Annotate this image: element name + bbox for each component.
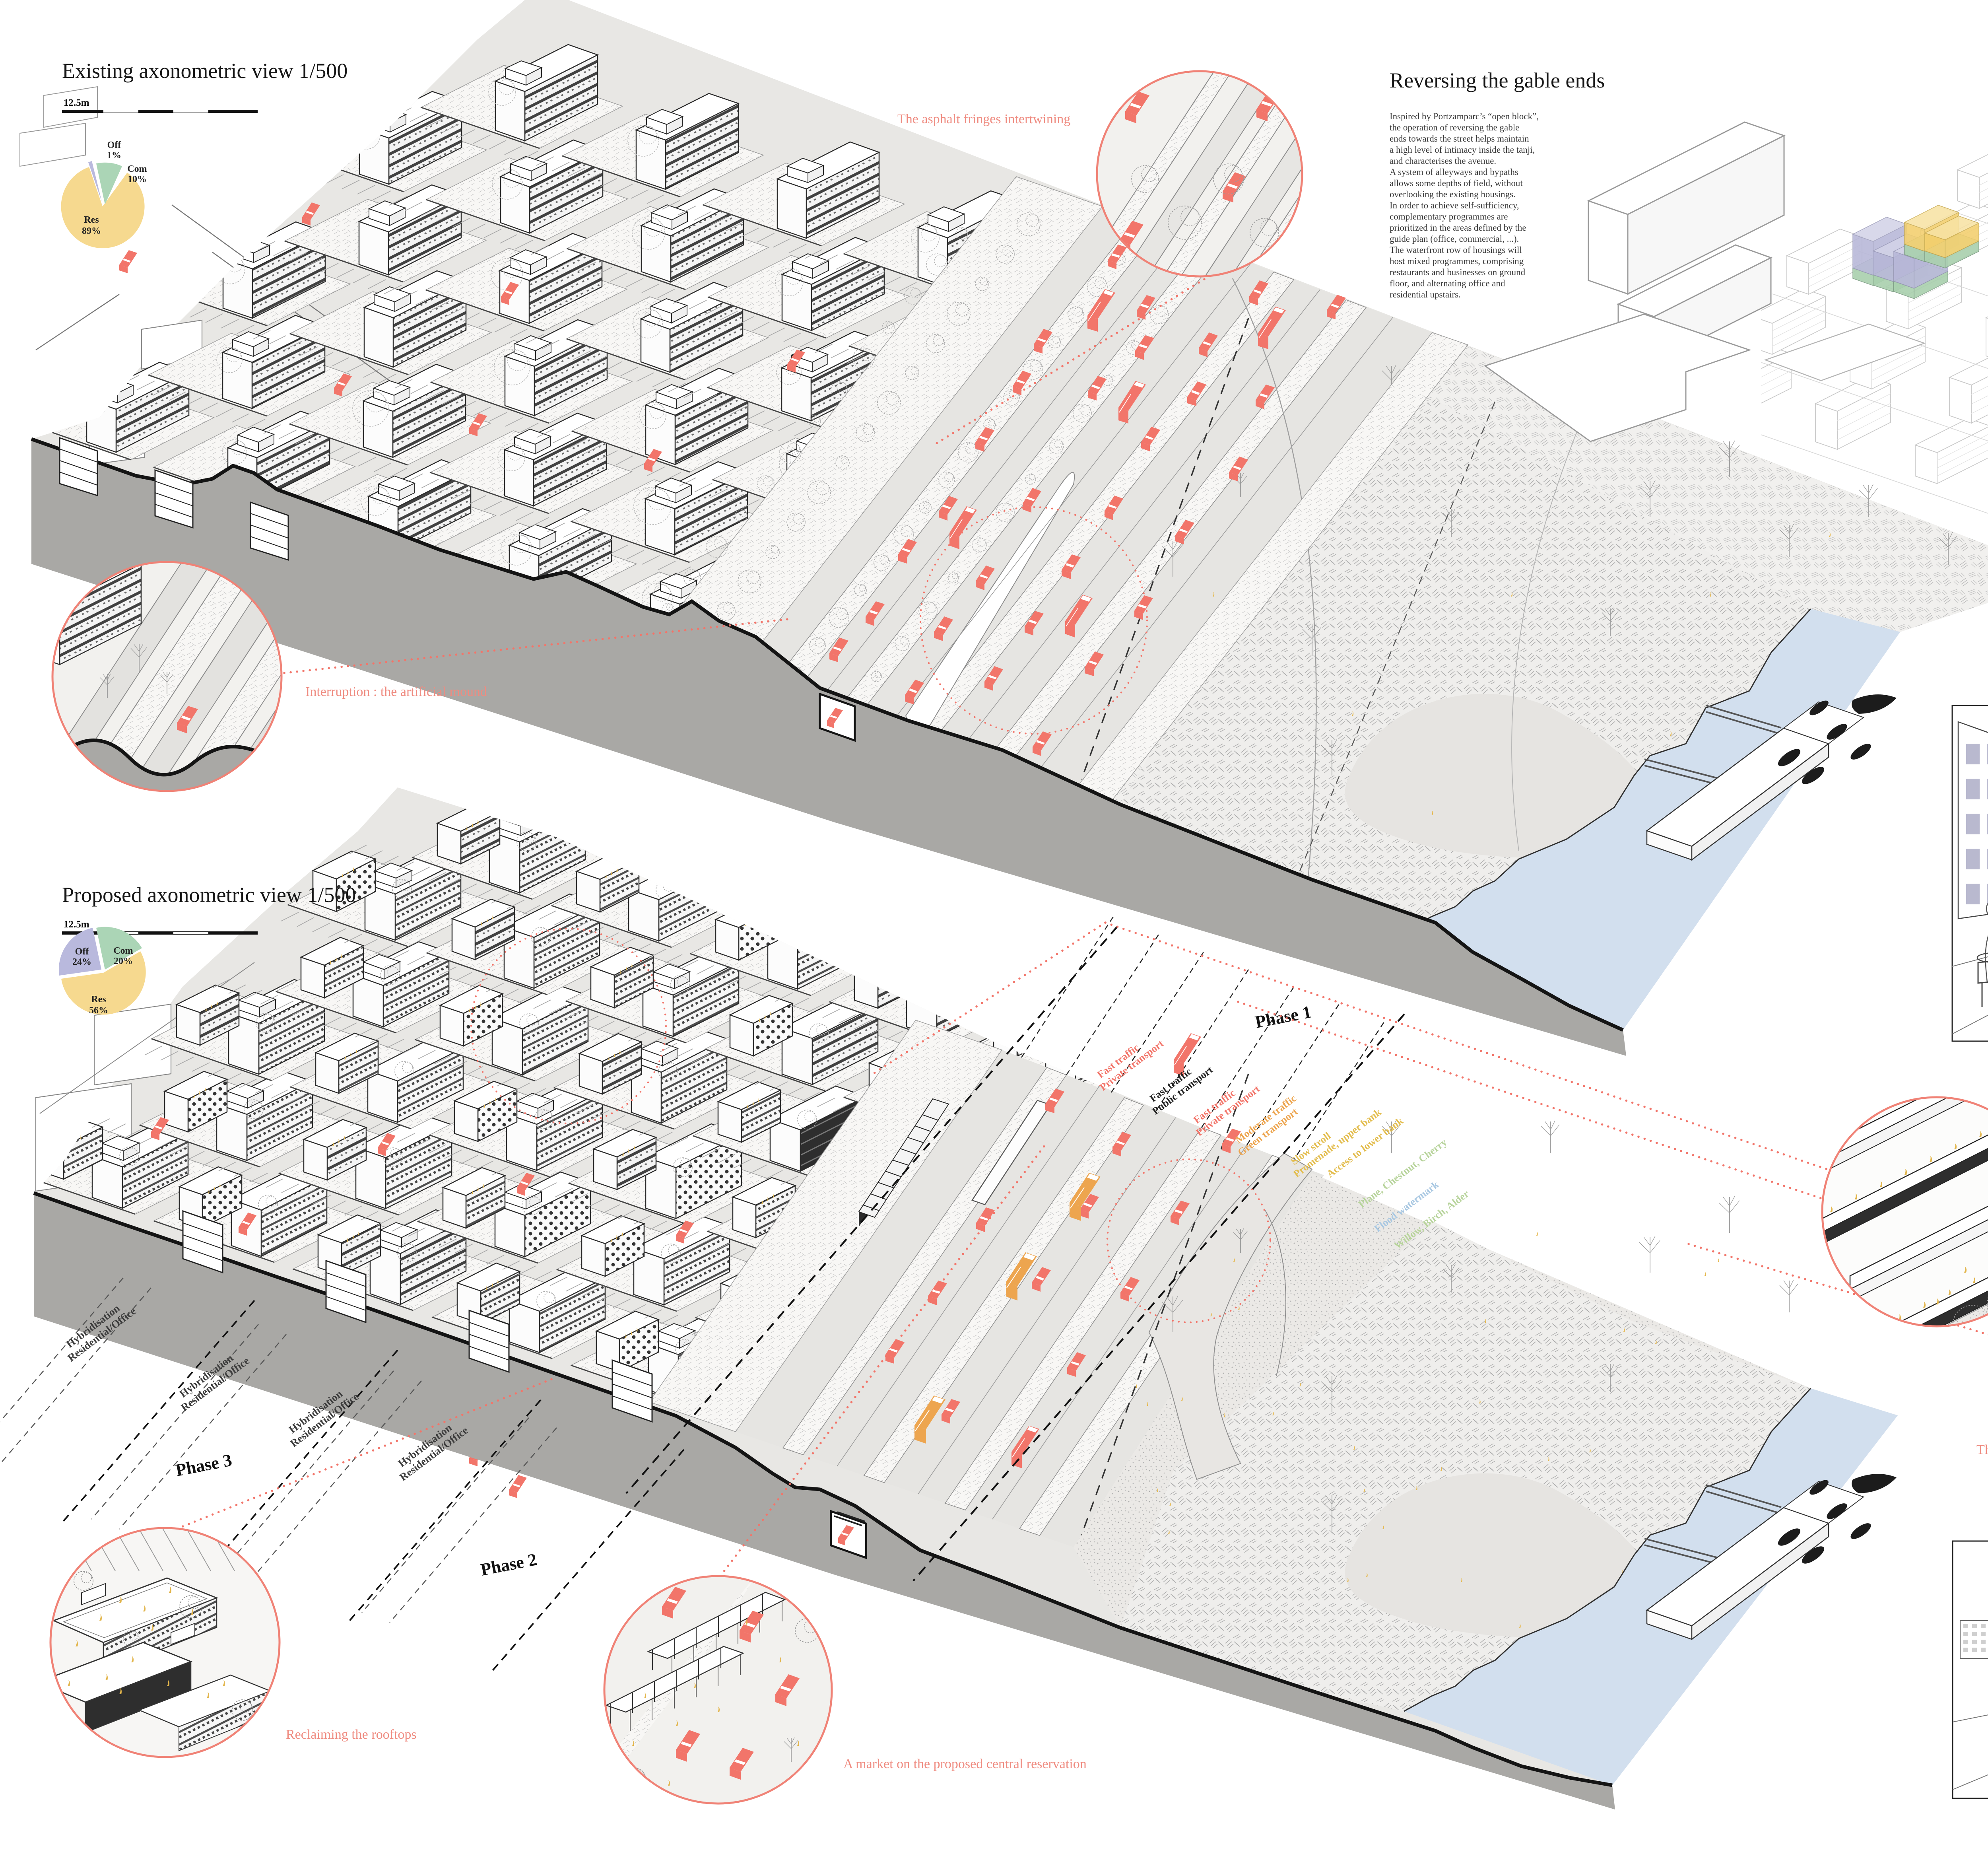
svg-text:a high level of intimacy insid: a high level of intimacy inside the tanj… [1390, 145, 1535, 155]
svg-text:The promenade linked to the lo: The promenade linked to the lower bank [1976, 1442, 1988, 1457]
svg-text:ends towards the street helps: ends towards the street helps maintain [1390, 134, 1529, 144]
svg-text:The asphalt fringes intertwini: The asphalt fringes intertwining [897, 112, 1070, 126]
svg-text:guide plan (office, commercial: guide plan (office, commercial, ...). [1390, 234, 1519, 244]
svg-text:Inspired by Portzamparc’s “ope: Inspired by Portzamparc’s “open block”, [1390, 111, 1539, 121]
svg-text:Proposed axonometric view 1/50: Proposed axonometric view 1/500 [62, 883, 356, 907]
svg-text:Reversing the gable ends: Reversing the gable ends [1390, 68, 1605, 92]
svg-text:Interruption : the artificial: Interruption : the artificial mound [305, 684, 487, 699]
svg-text:residential upstairs.: residential upstairs. [1390, 290, 1461, 299]
svg-text:89%: 89% [82, 226, 101, 236]
svg-text:overlooking the existing housi: overlooking the existing housings. [1390, 189, 1516, 199]
svg-text:allows some depths of field, w: allows some depths of field, without [1390, 178, 1523, 188]
svg-text:Existing axonometric view 1/50: Existing axonometric view 1/500 [62, 59, 348, 83]
svg-text:12.5m: 12.5m [64, 97, 89, 108]
svg-text:56%: 56% [89, 1005, 108, 1016]
svg-text:restaurants and businesses on: restaurants and businesses on ground [1390, 267, 1526, 277]
svg-text:complementary programmes are: complementary programmes are [1390, 212, 1508, 222]
svg-text:In order to achieve self-suffi: In order to achieve self-sufficiency, [1390, 200, 1519, 210]
svg-text:Com: Com [113, 946, 133, 956]
svg-text:Reclaiming the rooftops: Reclaiming the rooftops [286, 1727, 417, 1742]
svg-text:Off: Off [107, 140, 122, 150]
svg-text:A system of alleyways and bypa: A system of alleyways and bypaths [1390, 167, 1518, 177]
svg-text:10%: 10% [128, 174, 147, 185]
svg-text:20%: 20% [114, 956, 133, 966]
svg-text:The waterfront row of housings: The waterfront row of housings will [1390, 245, 1522, 255]
svg-text:host mixed programmes, compris: host mixed programmes, comprising [1390, 256, 1524, 266]
svg-text:1%: 1% [107, 150, 121, 161]
svg-text:prioritized in the areas defin: prioritized in the areas defined by the [1390, 223, 1526, 233]
svg-text:Res: Res [84, 215, 99, 225]
svg-text:Com: Com [127, 164, 147, 174]
svg-text:A market on the proposed centr: A market on the proposed central reserva… [843, 1757, 1087, 1771]
svg-text:Off: Off [75, 947, 89, 957]
svg-text:24%: 24% [72, 957, 91, 967]
svg-text:and characterises the avenue.: and characterises the avenue. [1390, 156, 1496, 166]
svg-text:the operation of reversing the: the operation of reversing the gable [1390, 122, 1519, 132]
svg-text:12.5m: 12.5m [64, 919, 89, 930]
svg-text:Res: Res [91, 994, 106, 1005]
svg-text:floor, and alternating office: floor, and alternating office and [1390, 278, 1505, 288]
